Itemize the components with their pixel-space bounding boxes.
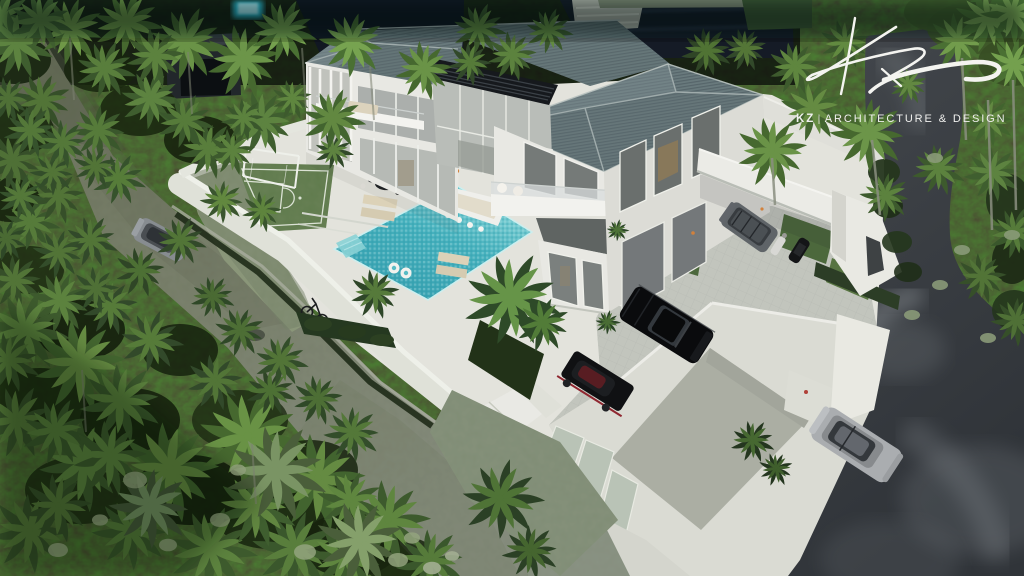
svg-text:KZ|ARCHITECTURE & DESIGN: KZ|ARCHITECTURE & DESIGN [796, 113, 1006, 125]
